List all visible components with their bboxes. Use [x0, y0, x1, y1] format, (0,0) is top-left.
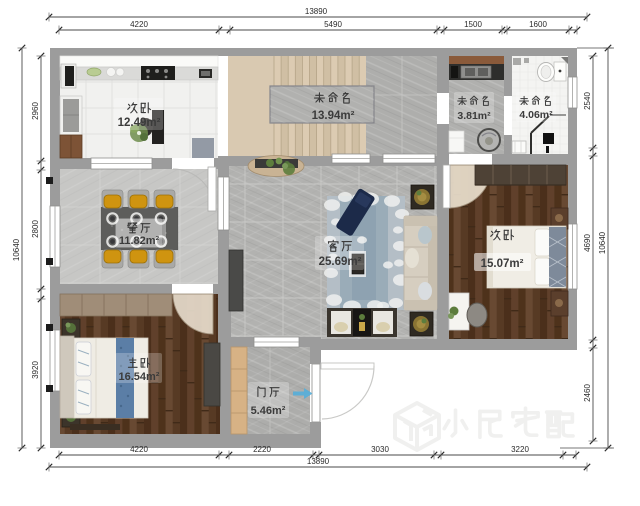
svg-text:3030: 3030 [371, 445, 389, 454]
svg-text:2960: 2960 [31, 102, 40, 120]
svg-text:2540: 2540 [583, 92, 592, 110]
svg-text:5.46m²: 5.46m² [251, 405, 286, 417]
svg-text:1600: 1600 [529, 20, 547, 29]
svg-text:2460: 2460 [583, 384, 592, 402]
svg-text:16.54m²: 16.54m² [119, 371, 160, 383]
svg-text:4.06m²: 4.06m² [519, 109, 553, 121]
svg-text:15.07m²: 15.07m² [481, 258, 524, 270]
svg-text:13890: 13890 [307, 457, 330, 466]
svg-text:3920: 3920 [31, 361, 40, 379]
svg-text:12.49m²: 12.49m² [118, 117, 161, 129]
svg-text:13890: 13890 [305, 7, 328, 16]
svg-text:10640: 10640 [12, 238, 21, 261]
svg-text:5490: 5490 [324, 20, 342, 29]
svg-text:4220: 4220 [130, 445, 148, 454]
svg-text:25.69m²: 25.69m² [319, 256, 362, 268]
svg-text:11.82m²: 11.82m² [119, 235, 160, 247]
svg-text:13.94m²: 13.94m² [312, 110, 355, 122]
svg-text:10640: 10640 [598, 231, 607, 254]
svg-text:4220: 4220 [130, 20, 148, 29]
svg-text:2220: 2220 [253, 445, 271, 454]
svg-text:3.81m²: 3.81m² [457, 110, 491, 122]
svg-text:3220: 3220 [511, 445, 529, 454]
svg-text:1500: 1500 [464, 20, 482, 29]
svg-text:2800: 2800 [31, 220, 40, 238]
svg-text:4690: 4690 [583, 234, 592, 252]
